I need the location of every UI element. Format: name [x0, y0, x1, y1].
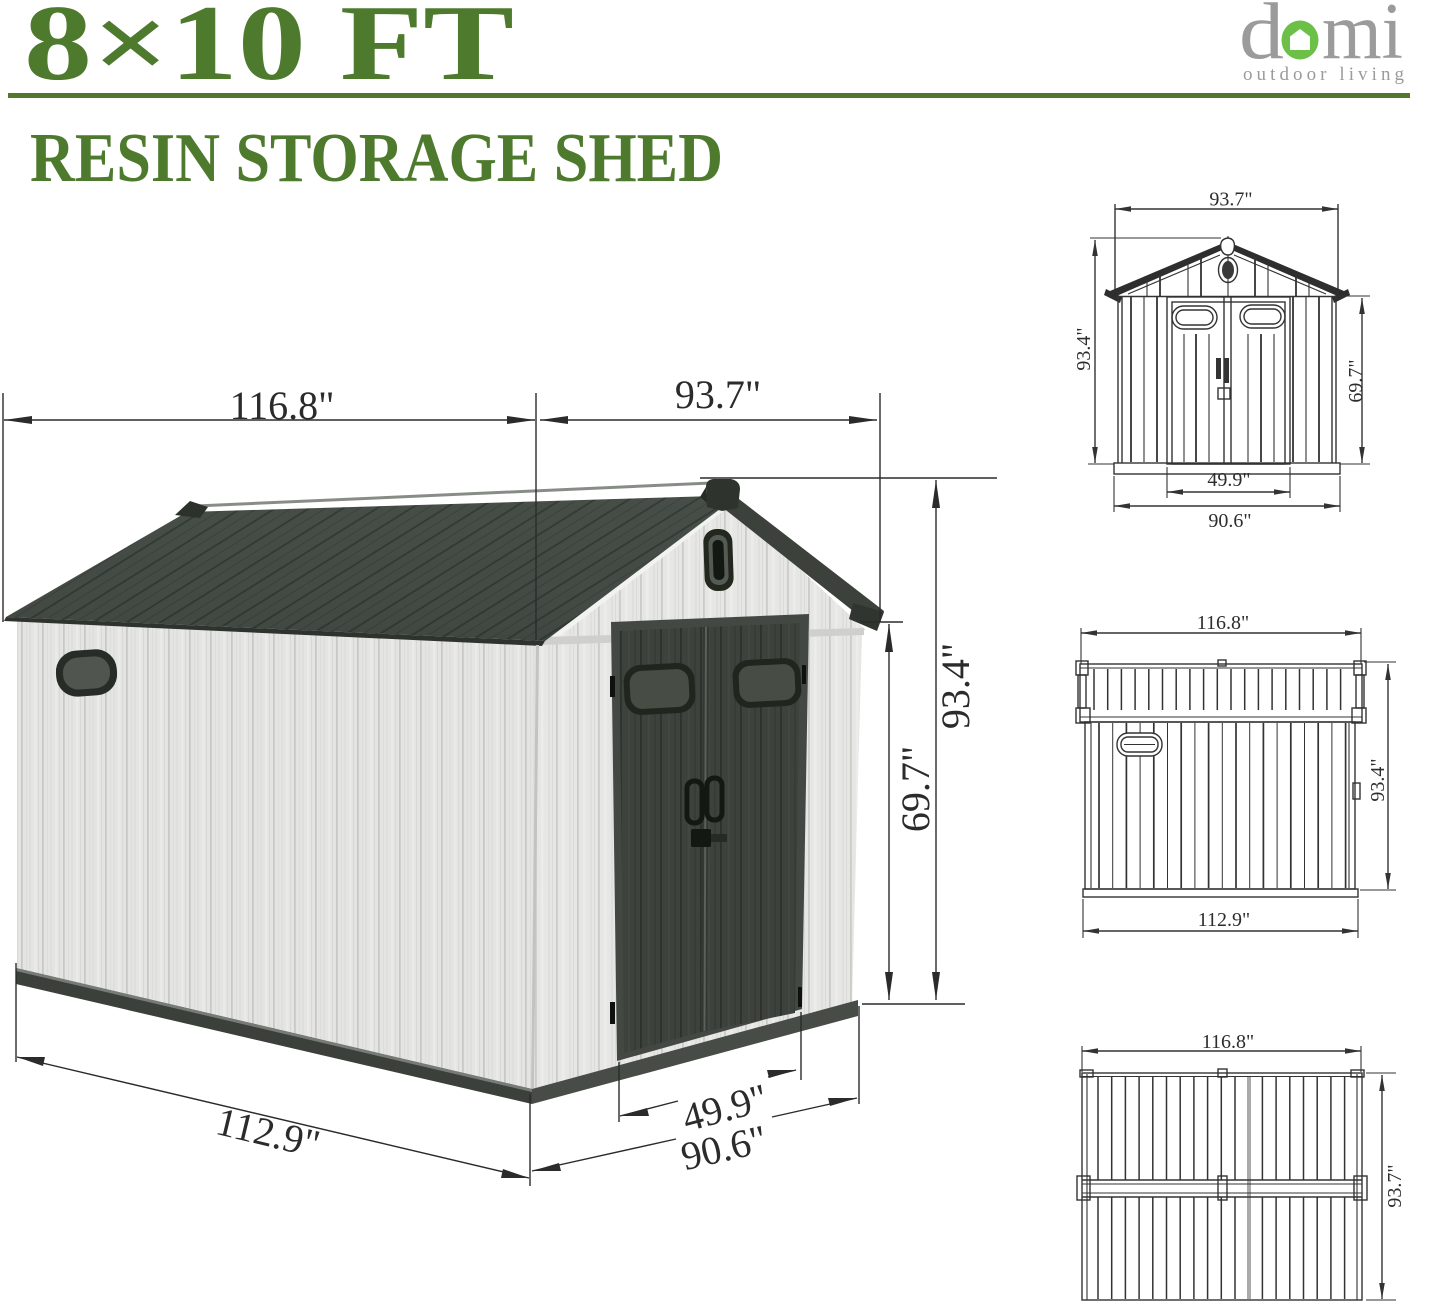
- svg-text:116.8": 116.8": [1197, 612, 1249, 634]
- svg-text:90.6": 90.6": [1208, 510, 1251, 532]
- svg-text:112.9": 112.9": [1198, 909, 1250, 931]
- svg-text:116.8": 116.8": [1202, 1031, 1254, 1053]
- svg-text:116.8": 116.8": [230, 383, 335, 428]
- svg-text:93.4": 93.4": [933, 643, 978, 729]
- svg-text:93.4": 93.4": [1367, 758, 1389, 801]
- svg-text:49.9": 49.9": [1207, 469, 1250, 491]
- svg-text:8×10 FT: 8×10 FT: [24, 0, 514, 103]
- svg-text:93.4": 93.4": [1073, 327, 1095, 370]
- svg-text:69.7": 69.7": [1345, 359, 1367, 402]
- svg-text:93.7": 93.7": [675, 372, 761, 417]
- svg-text:RESIN STORAGE SHED: RESIN STORAGE SHED: [30, 120, 723, 197]
- svg-text:69.7": 69.7": [893, 746, 938, 832]
- svg-text:93.7": 93.7": [1384, 1164, 1406, 1207]
- svg-text:93.7": 93.7": [1209, 189, 1252, 211]
